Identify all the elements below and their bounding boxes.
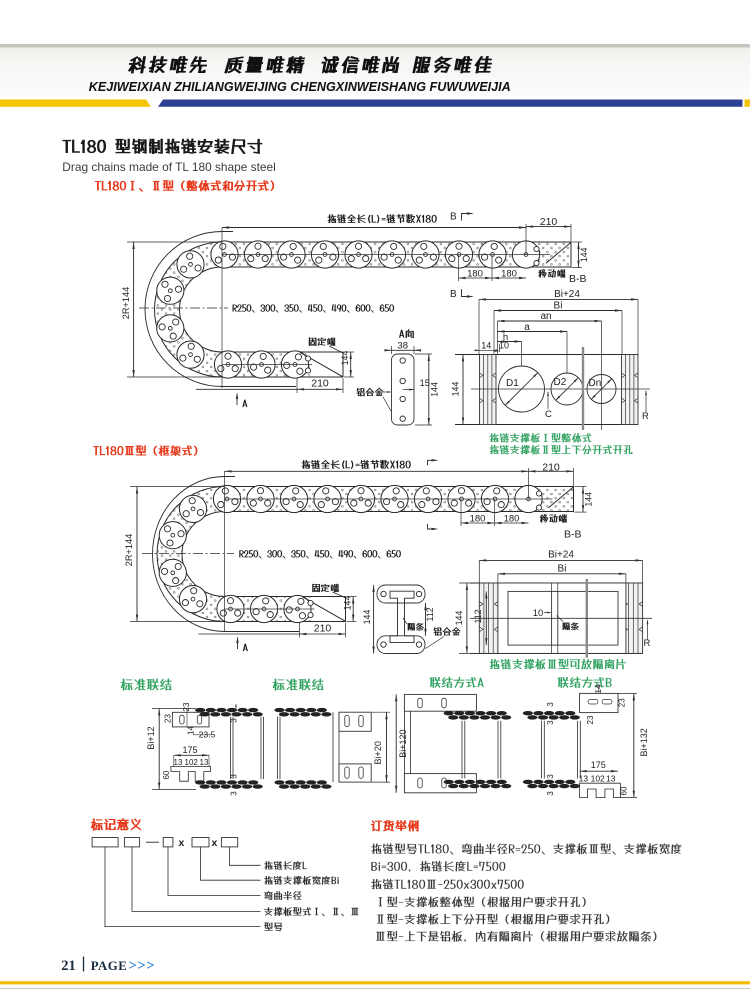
svg-text:180: 180	[470, 513, 486, 524]
svg-text:R: R	[642, 411, 649, 422]
svg-text:B: B	[450, 289, 457, 300]
svg-text:38: 38	[397, 340, 408, 351]
svg-text:102: 102	[591, 773, 605, 783]
svg-text:Dn: Dn	[589, 378, 602, 389]
svg-text:D2: D2	[554, 377, 567, 388]
svg-text:210: 210	[540, 216, 558, 228]
svg-text:Bi+20: Bi+20	[373, 741, 383, 764]
svg-text:Drag chains made of TL 180 sha: Drag chains made of TL 180 shape steel	[62, 160, 276, 174]
svg-text:2R+144: 2R+144	[121, 287, 131, 319]
svg-text:R: R	[644, 638, 651, 649]
svg-text:180: 180	[501, 268, 517, 279]
svg-text:B: B	[450, 212, 457, 223]
svg-text:180: 180	[504, 513, 520, 524]
svg-text:21: 21	[61, 958, 76, 974]
svg-text:3: 3	[230, 774, 239, 779]
svg-text:144: 144	[429, 382, 439, 397]
svg-text:14: 14	[186, 726, 195, 735]
svg-text:3: 3	[546, 702, 555, 707]
svg-text:14: 14	[594, 684, 603, 693]
svg-text:3: 3	[230, 791, 239, 796]
svg-text:x: x	[179, 837, 185, 849]
svg-text:102: 102	[185, 758, 199, 767]
svg-text:23: 23	[182, 702, 191, 711]
svg-text:13: 13	[174, 758, 183, 767]
svg-text:144: 144	[450, 382, 460, 397]
svg-text:144: 144	[342, 596, 352, 611]
svg-text:175: 175	[182, 745, 197, 755]
svg-text:13: 13	[200, 758, 209, 767]
svg-text:Bi+120: Bi+120	[398, 729, 408, 757]
svg-text:Bi: Bi	[554, 300, 563, 311]
svg-text:D1: D1	[506, 378, 519, 389]
svg-text:144: 144	[340, 351, 350, 366]
svg-text:144: 144	[362, 610, 372, 625]
svg-text:23: 23	[163, 714, 172, 723]
svg-text:3: 3	[230, 718, 239, 723]
svg-text:Bi+24: Bi+24	[548, 549, 574, 560]
svg-text:210: 210	[311, 378, 329, 390]
svg-text:Bi+12: Bi+12	[146, 726, 156, 749]
svg-text:144: 144	[583, 492, 593, 507]
svg-text:23: 23	[586, 715, 595, 724]
svg-text:144: 144	[579, 247, 589, 262]
svg-text:KEJIWEIXIAN ZHILIANGWEIJING: KEJIWEIXIAN ZHILIANGWEIJING CHENGXINWEIS…	[89, 80, 511, 94]
svg-text:Bi: Bi	[558, 563, 567, 574]
svg-text:B-B: B-B	[569, 273, 587, 285]
svg-text:>>>: >>>	[129, 958, 156, 974]
svg-text:23: 23	[618, 698, 627, 707]
svg-text:144: 144	[454, 611, 464, 626]
svg-text:C: C	[545, 409, 552, 420]
svg-text:60: 60	[620, 786, 629, 795]
svg-text:175: 175	[591, 760, 606, 770]
svg-text:PAGE: PAGE	[91, 959, 128, 973]
svg-text:3: 3	[546, 774, 555, 779]
svg-text:112: 112	[425, 607, 435, 621]
svg-text:60: 60	[162, 770, 171, 779]
svg-text:10: 10	[533, 608, 544, 619]
svg-text:2R+144: 2R+144	[124, 534, 134, 566]
svg-text:14: 14	[481, 340, 491, 350]
svg-text:13: 13	[579, 773, 589, 783]
svg-text:13: 13	[606, 773, 616, 783]
svg-text:210: 210	[314, 622, 332, 634]
svg-text:an: an	[540, 311, 551, 322]
svg-text:x: x	[212, 837, 218, 849]
svg-text:3: 3	[546, 791, 555, 796]
svg-text:Bi+132: Bi+132	[639, 728, 649, 756]
svg-text:3: 3	[546, 720, 555, 725]
svg-text:B-B: B-B	[564, 529, 582, 541]
svg-text:180: 180	[467, 268, 483, 279]
svg-text:112: 112	[473, 609, 483, 623]
svg-text:10: 10	[499, 340, 509, 350]
svg-text:Bi+24: Bi+24	[554, 289, 580, 300]
